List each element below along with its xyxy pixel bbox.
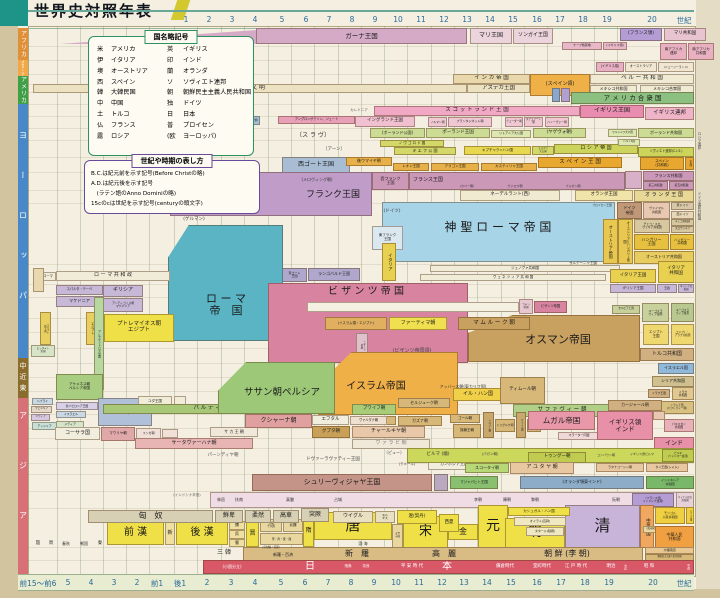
timeline-block: ユーゴスラ ヴィア連邦 [671,303,694,322]
timeline-block: 李朝 [468,495,488,505]
timeline-block: 第五共和政 [669,181,694,190]
timeline-block: (ドイツ) [378,208,406,216]
legend-line: 15cのcは世紀を示す記号(centuryの頭文字) [91,199,259,209]
century-label: 13 [459,578,469,587]
timeline-block: ユーゴスラ ヴィア連邦 [642,303,669,322]
timeline-block: 西フランク 王国 [372,172,409,190]
timeline-block: アケメネス朝 ペルシア帝国 [56,374,103,400]
timeline-block: サイイド朝 [516,412,526,438]
sidebar-region-アメリカ: アメリカ [18,76,28,104]
century-label: 12 [437,578,447,587]
legend-cell: 日 [167,110,183,121]
century-label: 2 [205,578,210,587]
century-label: 2 [135,578,140,587]
legend-row: 伊イタリア印インド [89,56,253,67]
timeline-block: 鮮卑 [215,510,243,523]
timeline-block: クシャーナ朝 [245,414,312,428]
timeline-block: 西ドイツ [671,211,694,219]
timeline-block: 平成 [684,560,692,574]
timeline-block: テューダー朝 [505,117,523,127]
timeline-block: ケープ植民地 [562,42,602,50]
timeline-block: アングロ=サクソン、ジュート [278,116,355,124]
timeline-block: フェニキア [31,406,52,413]
timeline-block [168,225,283,341]
century-label: 4 [253,578,258,587]
legend-row: 米アメリカ英イギリス [89,45,253,56]
timeline-block: 朝 鮮 (李 朝) [502,548,632,560]
timeline-block [307,302,519,312]
timeline-block: チャールキヤ朝 [352,426,425,438]
timeline-block: ビザンツ帝国 [534,301,567,313]
timeline-block: ビ ザ ン ツ 帝 国 [312,286,420,299]
timeline-block: 蜀 [229,539,245,547]
timeline-block: 南アフリカ 共和国 [688,43,714,60]
timeline-block: ムガル帝国 [528,411,595,430]
legend-cell: スペイン [111,78,167,89]
legend-cell: オーストリア [111,67,167,78]
timeline-block: オ ラ ン ダ 王 国 [634,190,694,202]
timeline-block: セルビア王国 [612,305,640,314]
timeline-block: ブワイフ朝 [352,404,396,415]
timeline-block: 新 羅 [322,548,392,560]
timeline-block: 江 戸 時 代 [552,563,600,571]
century-label: 3 [229,578,234,587]
timeline-block: (ニュージーランド) [658,62,694,72]
timeline-block: 三 韓 [205,548,243,558]
century-label: 17 [556,578,566,587]
timeline-block: カスティリャ王国 [481,163,537,171]
century-label: 前1 [151,578,163,589]
legend-row: 露ロシア(欧ヨーロッパ) [89,132,253,143]
timeline-block: マウリヤ朝 [101,427,135,441]
timeline-block: 平 安 時 代 [388,563,436,571]
timeline-block: マジャパヒト王国 [450,476,498,489]
timeline-block: セルジューク朝 [398,398,450,408]
timeline-block: 新 [165,522,175,545]
legend-cell: 仏 [89,121,111,132]
timeline-block: (ゲルマン) [168,216,220,224]
timeline-block: ギリシア王国 [610,284,656,293]
timeline-block: 突厥 [301,508,329,522]
timeline-block: 〔アーン〕 [316,146,352,155]
timeline-block: オーストリア帝国 [603,219,618,264]
legend-cell: イタリア [111,56,167,67]
timeline-block: チェコ・スロ ヴァキア共和国 [634,219,670,233]
timeline-block: ベトナム民主共和国 [676,492,694,508]
timeline-block [552,88,560,102]
timeline-block: ファーティマ朝 [389,317,447,330]
timeline-block: オスマン帝国 [508,332,608,347]
century-label: 後1 [174,578,186,589]
timeline-block: ア ユ タ ヤ 朝 [510,462,574,474]
timeline-block: 第三共和政 [643,181,668,190]
century-label: 14 [482,578,492,587]
legend-cell: アメリカ [111,45,167,56]
timeline-block: 五代 十国 [392,524,403,548]
legend-cell: プロイセン [183,121,253,132]
timeline-block: (王政) [685,157,694,170]
legend-cell: (欧 [167,132,183,143]
timeline-block: カレドニア [344,107,374,115]
legend-cell: 伊 [89,56,111,67]
legend-title: 世紀や時期の表し方 [132,154,213,168]
timeline-block: スコータイ朝 [465,463,509,473]
timeline-block: スロヴァキア [671,226,694,233]
timeline-block: オイラト(瓦剌) [514,517,566,526]
timeline-block: ス ペ イ ン 王 国 [538,157,622,168]
timeline-block: (インドシナ半島) [158,492,216,499]
timeline-block: オランダ王国 [575,190,633,201]
timeline-block [653,411,665,420]
timeline-block: カシュガル・ハン国 [508,507,570,516]
century-label: 18 [580,578,590,587]
timeline-block: 呉 [229,530,245,539]
world-history-chart-page: 世界史対照年表 1234567891011121314151617181920世… [0,0,720,598]
timeline-block: サルデーニャ王国 [556,260,610,267]
legend-cell: ドイツ [183,99,253,110]
timeline-block: トゥグルク朝 [495,419,515,432]
timeline-block: 柔然 [245,510,271,523]
timeline-block: 鎌倉時代 [486,563,524,571]
timeline-block: 高 麗 [400,548,488,560]
timeline-block: コンバウン朝 [590,452,622,460]
timeline-block: ハンガリー 共和国 [670,234,694,250]
timeline-block: インドネシア 共和国 [646,476,694,489]
century-label: 6 [303,578,308,587]
timeline-block: イスラエル [56,411,86,418]
timeline-block: コーサラ国 [55,427,100,440]
century-label: 4 [89,578,94,587]
legend-cell: フランス [111,121,167,132]
timeline-block: ビルマ (緬) [412,451,464,460]
timeline-block: レオン王国 [393,163,429,171]
timeline-block: パーンディヤ朝 [178,452,268,460]
legend-line: B.C.は紀元前を示す記号(Before Christの略) [91,169,259,179]
timeline-block: 晋 [246,521,259,547]
timeline-block: 春秋 [58,540,74,548]
timeline-block: エジプト 新王国 [40,312,51,345]
timeline-block: 本 [440,561,454,573]
timeline-block: サータヴァーハナ朝 [135,438,253,449]
timeline-block: (ポーランド公国) [370,128,425,138]
sidebar-region-アジア: アジア [18,398,28,574]
legend-cell: トルコ [111,110,167,121]
timeline-block: ワルシャワ大公国 [608,129,637,137]
timeline-block: マ ム ル ー ク 朝 [458,317,530,330]
timeline-block: 阮朝 [606,495,626,505]
timeline-block: ガーナ王国 [256,28,467,44]
timeline-block: 南アフリカ 連邦 [660,43,687,60]
timeline-block: イギリス領 インド [597,411,653,440]
timeline-block: 清 [565,505,640,548]
timeline-block: ヴァイマル 共和国 [643,202,670,219]
margin-label: ロシア連邦 [698,132,703,150]
legend-cell: 墺 [89,67,111,78]
timeline-block: (パガン朝) [470,451,510,459]
timeline-block: 匈 奴 [88,510,213,523]
timeline-block: プロイセン王国 [586,202,618,209]
timeline-block: パキスタン 共和国 [664,419,694,432]
legend-cell: オランダ [183,67,253,78]
century-label: 19 [604,578,614,587]
timeline-block: 秦 [95,540,105,548]
timeline-block: (イギリス領) [596,62,624,72]
timeline-block: ラテン 帝国 [519,299,533,314]
timeline-block: ソンガイ王国 [513,28,553,44]
legend-cell: 韓 [89,88,111,99]
timeline-block: イギリス連邦 [645,107,694,120]
timeline-block: チェコ共和国 [671,219,694,226]
timeline-block: アラゴン王国 [431,163,479,171]
legend-cell: 普 [167,121,183,132]
timeline-block: モンゴル国 [686,507,694,524]
timeline-block: タイ王国(シャム) [646,463,688,472]
timeline-block: (イギリス領) [603,42,627,50]
timeline-block: ヴァルダナ朝 [350,416,387,425]
timeline-block: アンティゴノス朝 マケドニア [103,298,143,312]
timeline-block: モスクワ 大公国 [532,146,554,155]
legend-row: 土トルコ日日本 [89,110,253,121]
country-abbreviation-legend: 国名略記号 米アメリカ英イギリス伊イタリア印インド墺オーストリア蘭オランダ西スペ… [88,36,254,156]
legend-cell: 露 [89,132,111,143]
century-label: 15 [506,578,516,587]
legend-cell: 英 [167,45,183,56]
timeline-block: イ ン カ 帝 国 [453,74,530,84]
century-label: 11 [414,578,424,587]
timeline-block: シリア共和国 [652,376,694,387]
legend-row: 西スペインソソヴィエト連邦 [89,78,253,89]
timeline-block: グプタ朝 [312,426,350,438]
timeline-block: タタール(韃靼) [526,527,564,536]
timeline-block: 東ドイツ [671,202,694,210]
timeline-block: 周 [46,540,56,548]
timeline-block: リトアニア大公国 [491,130,531,138]
century-label: 世紀 [677,578,692,589]
timeline-block: バルト3国 [618,139,640,146]
timeline-block: マリ王国 [470,28,512,44]
century-label: 5 [66,578,71,587]
sidebar-region-オセアニア: オセアニア [18,60,28,76]
timeline-block: 中華人民 共和国 [655,526,694,548]
timeline-block: エジプト・ アラブ共和国 [671,324,694,345]
timeline-block: ヘブライ [32,398,53,405]
timeline-block: 奴隷王朝 [453,424,481,438]
timeline-block: 奈良 [358,563,374,571]
timeline-block: ラタナコーシン朝 [596,463,644,472]
timeline-block: イギリス領ビルマ [622,451,662,459]
timeline-block: ソヴィエト連邦(C.I.S.) [638,147,694,157]
legend-cell: 印 [167,56,183,67]
timeline-block: (カペー朝) [452,183,482,190]
legend-cell: インド [183,56,253,67]
timeline-block: ハンガリー 王国 [634,234,669,250]
timeline-block: (小国分立) [210,563,254,571]
timeline-block: ロ ー マ 共 和 政 [56,271,170,281]
timeline-block: ササン朝ペルシア [228,386,336,400]
timeline-block: シュリーヴィジャヤ王国 [252,474,432,491]
timeline-block: スパルタ・テーベ [56,285,103,295]
timeline-block: ギリシア [103,285,143,297]
legend-rows: 米アメリカ英イギリス伊イタリア印インド墺オーストリア蘭オランダ西スペインソソヴィ… [89,45,253,143]
legend-cell: 朝 [167,88,183,99]
timeline-block: 陳朝 [498,495,516,505]
timeline-block: ドイツ 帝国 [617,202,642,219]
legend-cell: ソヴィエト連邦 [183,78,253,89]
timeline-block: 後 漢 [176,522,228,545]
timeline-block [162,429,178,438]
timeline-block [434,474,448,491]
timeline-block: イラク王国 [648,389,670,398]
timeline-block: キル ギス [375,511,395,523]
timeline-block: 西夏 [439,514,459,532]
timeline-block: アステカ王国 [467,84,530,93]
timeline-block: 昭 和 [636,563,662,571]
legend-cell: ロシア [111,132,167,143]
legend-title: 国名略記号 [145,30,198,44]
timeline-block: カージャール朝 [608,400,662,411]
timeline-block: 遼(契丹) [397,510,437,524]
timeline-block: イングランド王国 [355,116,415,127]
legend-cell: 中 [89,99,111,110]
legend-cell: 土 [89,110,111,121]
timeline-block: アッシリア [32,422,57,430]
timeline-block: イタリア王国 [610,269,656,283]
timeline-block: 占城 [330,495,346,505]
century-label: 20 [648,578,658,587]
timeline-block [625,171,642,189]
timeline-block: イル・ハン国 [453,388,503,401]
timeline-block: イスラム帝国 [330,380,422,394]
timeline-block: スペイン (共和政) [640,157,684,170]
century-label: 8 [349,578,354,587]
timeline-block: ヴァロワ朝 [500,183,530,190]
timeline-block: (メロヴィング朝) [286,176,348,184]
century-label: 7 [326,578,331,587]
timeline-block: 飛鳥 [340,563,356,571]
timeline-block: ブルボン朝 [556,183,590,190]
sidebar-region-アフリカ: アフリカ [18,28,28,60]
timeline-block: 〔ス ラ ヴ〕 [290,131,336,142]
timeline-block: イラン王国 (パフレヴィー朝) [660,401,694,414]
timeline-block: ガズナ朝 [398,416,442,426]
legend-line: (ラテン語のAnno Dominiの略) [91,189,259,199]
legend-cell: 米 [89,45,111,56]
timeline-block: 黎朝 [526,495,544,505]
timeline-block: ギリシア共和国 [678,284,694,293]
timeline-block: ノ ヴ ゴ ロ ド 国 [380,140,444,147]
timeline-block: フランス共和国 [643,171,694,181]
timeline-block: ウイグル [333,511,373,523]
timeline-block: イスラエル国 [658,363,694,374]
timeline-block: ビルマ (ミャンマー連邦) [662,449,694,462]
timeline-block: 真臘 [282,495,298,505]
timeline-block: 扶南 [231,495,247,505]
timeline-block: ス コ ッ ト ラ ン ド 王 国 [374,106,580,116]
sidebar-region-中近東: 中近東 [18,358,28,398]
timeline-block: ドヴァーラヴァティー王国 [272,456,394,464]
timeline-block: モンゴル 人民共和国 [655,507,685,524]
timeline-block: イラク 共和国 [672,387,694,400]
timeline-block: ティムール朝 [500,377,545,404]
margin-label: ドイツ連邦共和国 [698,192,703,220]
timeline-block: ゴール朝 [450,414,480,423]
legend-cell: 日本 [183,110,253,121]
timeline-block: オーストリア=ハンガリー帝国 [618,219,633,264]
legend-cell: 独 [167,99,183,110]
timeline-block: エジプト 王国 [643,324,669,345]
timeline-block: ネーデルラント(西) [460,190,560,201]
timeline-block: オーストラリア [625,62,657,72]
legend-cell: 西 [89,78,111,89]
legend-cell: 朝鮮民主主義人民共和国 [183,88,253,99]
legend-cell: 中国 [111,99,167,110]
timeline-block: 前 漢 [107,522,164,545]
timeline-block: 〔ピュー〕 [378,449,410,457]
legend-row: 墺オーストリア蘭オランダ [89,67,253,78]
timeline-block: 後ウマイヤ朝 [346,157,392,166]
timeline-block: 高車 [273,510,299,523]
timeline-block: (イスラム領・エジプト) [325,317,387,330]
timeline-block: ハルジー朝 [483,412,494,438]
timeline-block: 林邑 [213,495,229,505]
timeline-block: 元 [478,505,508,548]
timeline-block: (ヤゲヴォ朝) [533,128,586,138]
era-notation-legend: 世紀や時期の表し方 B.C.は紀元前を示す記号(Before Christの略)… [84,160,260,214]
timeline-block: イギリス王国 [580,105,644,118]
timeline-block: 東ゴート 王国 [282,268,307,282]
timeline-block: 戦国 [76,540,92,548]
timeline-block: ヴ ェ ネ ツ ィ ア 共 和 国 [420,274,606,281]
timeline-block: キ エ フ 公 国 [394,147,456,155]
timeline-block: 大韓民国 [645,547,694,554]
legend-row: 中中国独ドイツ [89,99,253,110]
century-label: 前15〜前6 [20,578,57,589]
timeline-block: ペ ル ー 共 和 国 [590,74,694,84]
century-label: 16 [532,578,542,587]
timeline-block: 宋・斉・梁・陳 [260,533,303,545]
legend-cell: ソ [167,78,183,89]
timeline-block: 西ゴート王国 [282,157,350,173]
timeline-block: ロ ー マ 帝 国 [186,290,266,320]
century-label: 9 [372,578,377,587]
timeline-block [561,88,570,102]
timeline-block: エフタル [312,415,349,425]
timeline-block: ポーランド共和国 [638,128,694,138]
timeline-block [33,268,44,292]
timeline-block: ヒッタイト 王国 [31,345,55,357]
timeline-block: イタリア [382,243,396,281]
timeline-block: 神 聖 ロ ー マ 帝 国 [398,219,598,235]
century-label: 10 [391,578,401,587]
timeline-block: (フランス領) [620,28,662,41]
legend-cell: 蘭 [167,67,183,78]
legend-cell: イギリス [183,45,253,56]
timeline-block: ステュアート朝 [524,117,543,127]
sidebar-region-ヨーロッパ: ヨーロッパ [18,104,28,358]
timeline-block: 王政 [657,284,677,293]
timeline-block: リディア [31,414,50,421]
timeline-block: 日 [303,561,317,573]
timeline-block: 大正 [621,560,629,574]
legend-cell: ヨーロッパ) [183,132,253,143]
timeline-block: プランタジネット朝 [448,117,492,127]
timeline-block: (オランダ領東インド) [520,476,644,489]
timeline-block: ア メ リ カ 合 衆 国 [571,92,694,104]
bottom-century-axis: 前15〜前65432前1後123456789101112131415161718… [18,574,694,591]
timeline-block: イタリア 共和国 [658,261,694,283]
legend-line: A.D.は紀元後を示す記号 [91,179,259,189]
timeline-block: 明治 [602,563,620,571]
